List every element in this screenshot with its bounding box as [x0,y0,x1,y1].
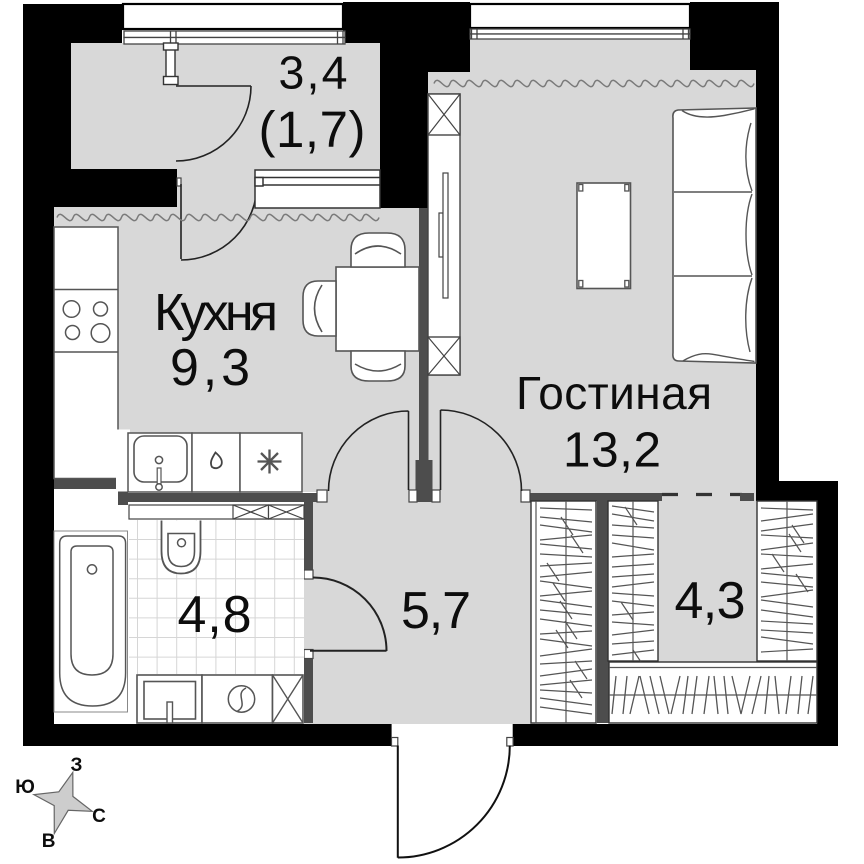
svg-text:5,7: 5,7 [401,582,471,640]
svg-text:9,3: 9,3 [170,339,250,397]
svg-text:(1,7): (1,7) [259,101,366,158]
svg-text:4,8: 4,8 [178,586,252,644]
svg-text:13,2: 13,2 [563,423,661,478]
svg-text:С: С [92,806,106,827]
svg-text:Кухня: Кухня [154,284,278,342]
svg-text:З: З [71,755,83,776]
svg-text:4,3: 4,3 [675,572,746,630]
svg-text:В: В [42,831,56,852]
svg-text:Ю: Ю [15,777,35,798]
svg-text:3,4: 3,4 [279,47,348,99]
svg-text:Гостиная: Гостиная [516,367,712,419]
